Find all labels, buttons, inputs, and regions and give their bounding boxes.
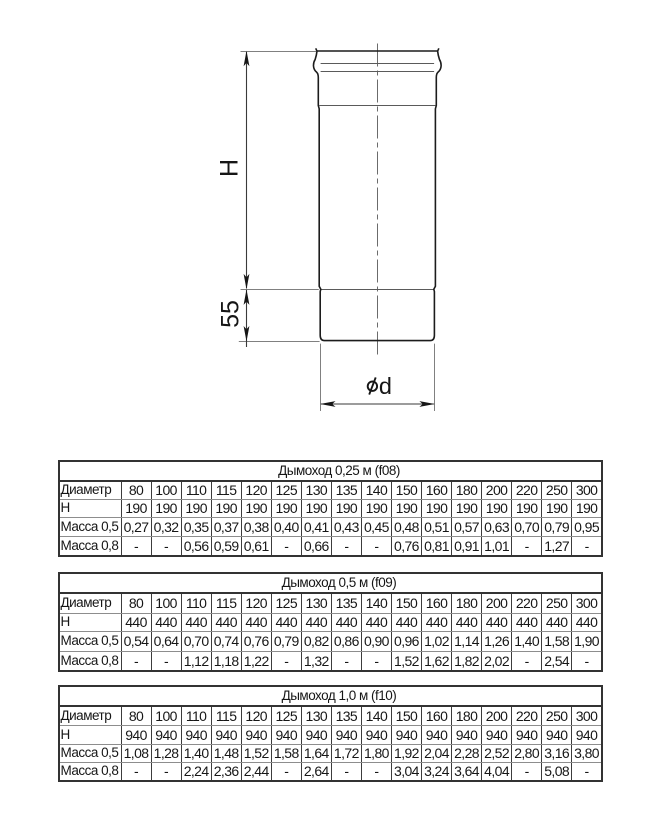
svg-text:d: d [379,373,392,399]
svg-text:55: 55 [217,300,245,328]
svg-text:H: H [216,159,244,177]
